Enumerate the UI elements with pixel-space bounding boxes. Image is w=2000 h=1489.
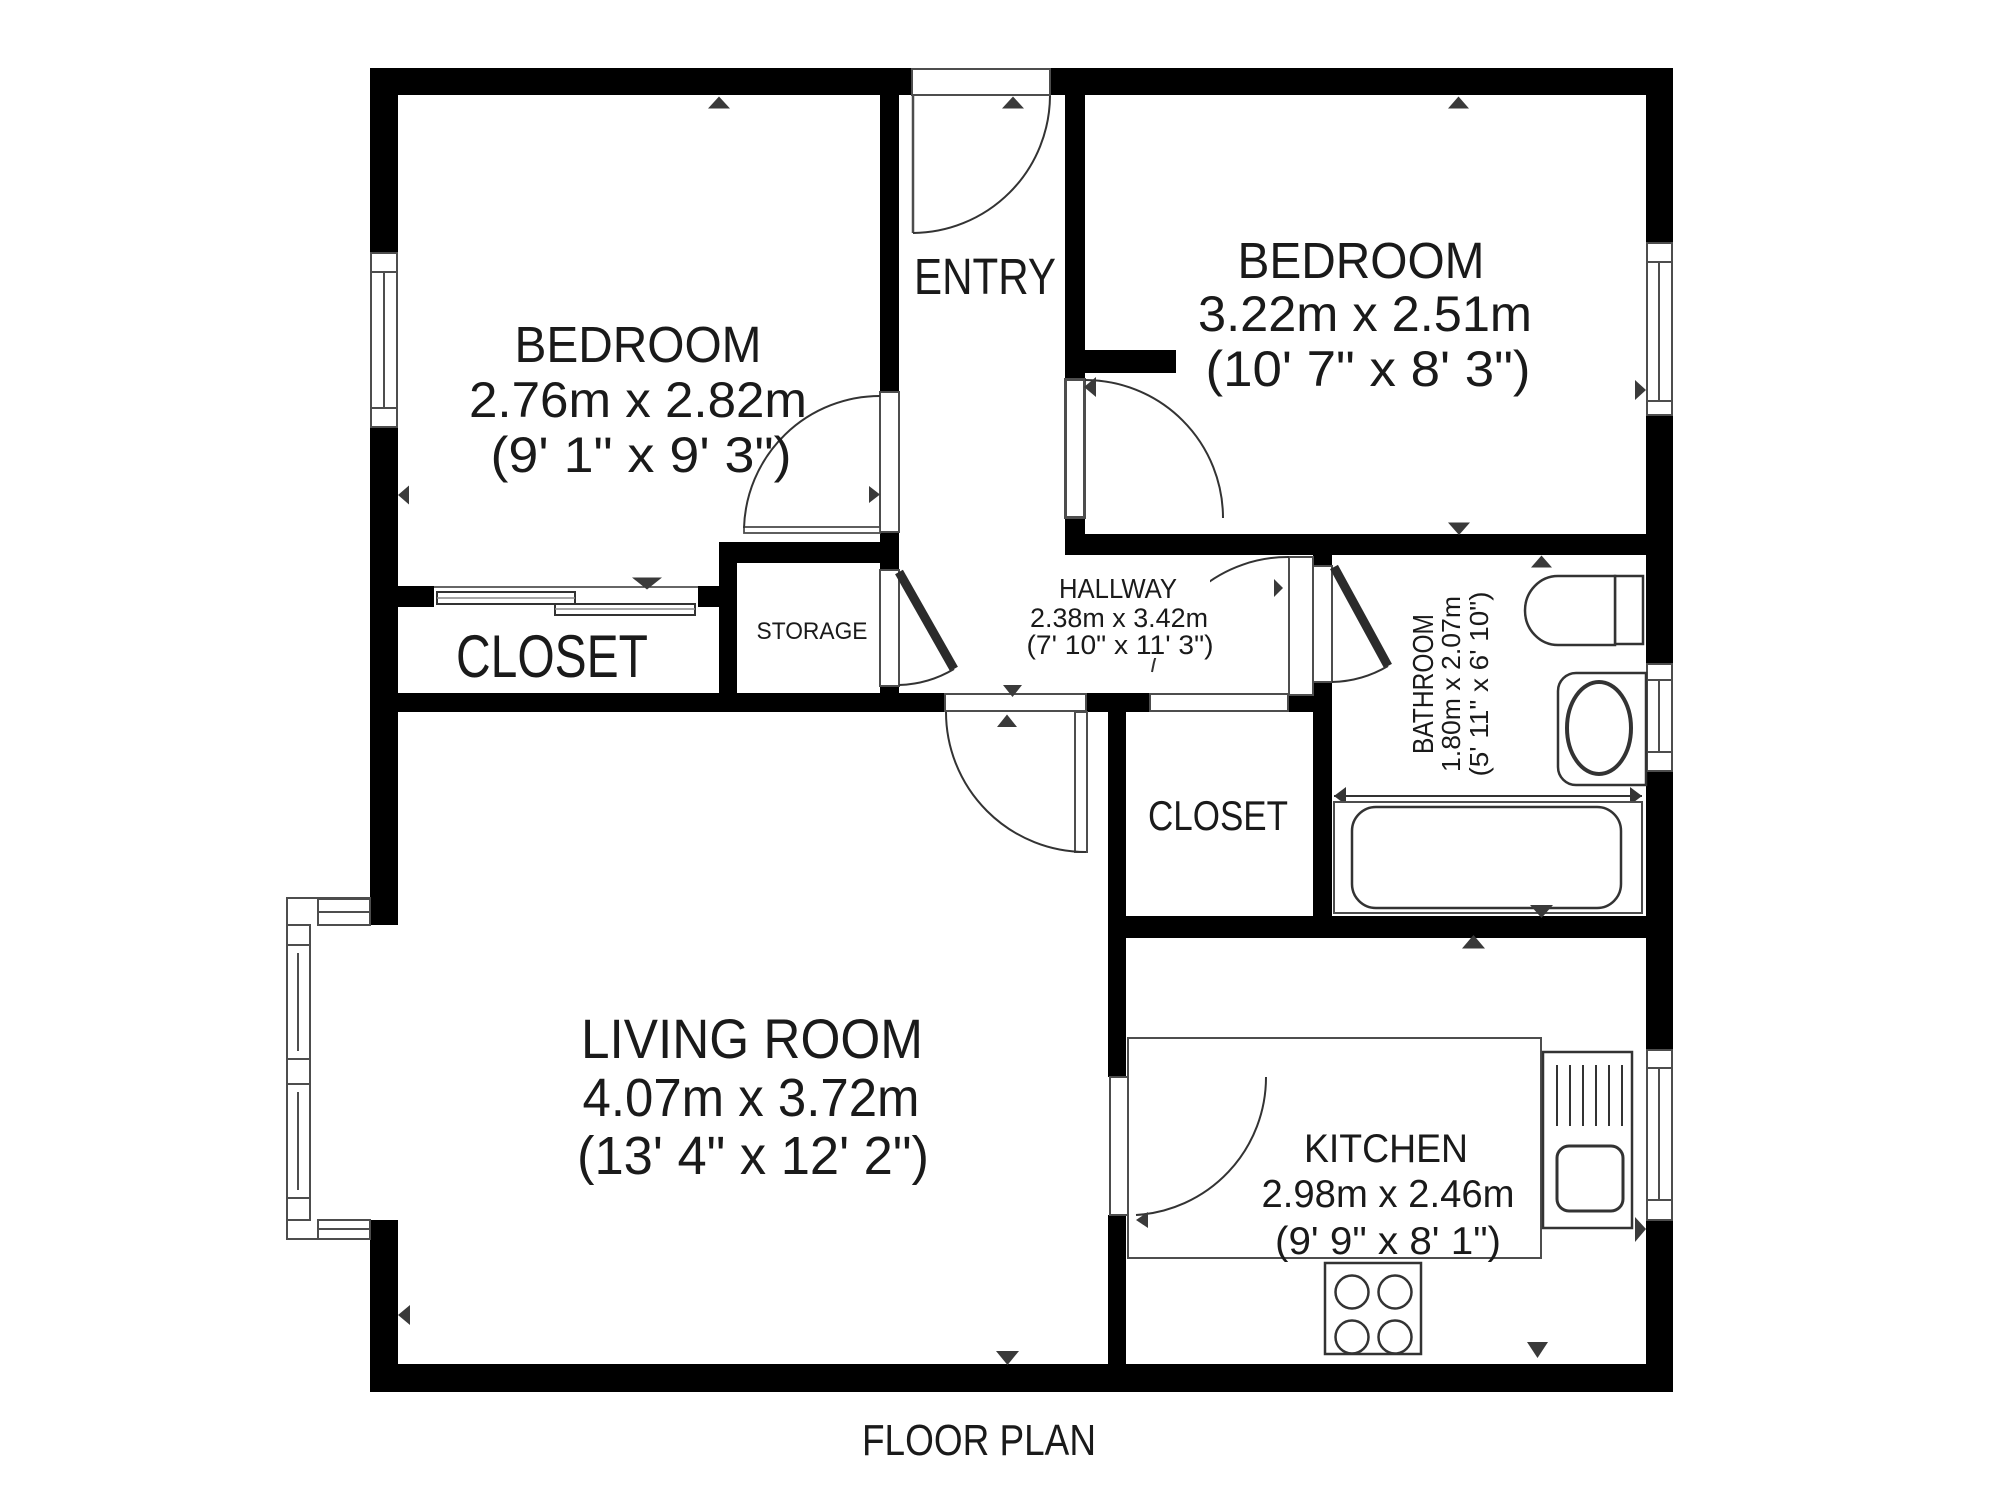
svg-text:3.22m x 2.51m: 3.22m x 2.51m — [1198, 286, 1532, 342]
svg-text:2.38m x 3.42m: 2.38m x 3.42m — [1030, 603, 1208, 633]
svg-text:(10' 7" x 8' 3"): (10' 7" x 8' 3") — [1206, 341, 1531, 397]
svg-text:4.07m x 3.72m: 4.07m x 3.72m — [583, 1068, 920, 1128]
svg-text:FLOOR PLAN: FLOOR PLAN — [862, 1416, 1096, 1465]
svg-text:STORAGE: STORAGE — [757, 618, 868, 645]
svg-text:BEDROOM: BEDROOM — [515, 316, 762, 373]
svg-text:LIVING ROOM: LIVING ROOM — [581, 1007, 923, 1070]
svg-text:(5' 11" x 6' 10"): (5' 11" x 6' 10") — [1464, 592, 1494, 777]
svg-text:ENTRY: ENTRY — [914, 248, 1056, 305]
svg-text:CLOSET: CLOSET — [1148, 792, 1288, 839]
svg-text:1.80m x 2.07m: 1.80m x 2.07m — [1436, 596, 1466, 772]
svg-text:(7' 10" x 11' 3"): (7' 10" x 11' 3") — [1027, 630, 1214, 660]
svg-text:(9' 9" x 8' 1"): (9' 9" x 8' 1") — [1275, 1220, 1501, 1263]
svg-text:HALLWAY: HALLWAY — [1059, 573, 1177, 604]
svg-text:CLOSET: CLOSET — [456, 623, 648, 690]
svg-text:BEDROOM: BEDROOM — [1238, 232, 1485, 289]
svg-text:(9' 1" x 9' 3"): (9' 1" x 9' 3") — [491, 427, 792, 483]
svg-text:2.76m x 2.82m: 2.76m x 2.82m — [469, 372, 807, 428]
svg-text:KITCHEN: KITCHEN — [1304, 1127, 1468, 1171]
svg-text:2.98m x 2.46m: 2.98m x 2.46m — [1262, 1173, 1515, 1216]
svg-text:(13' 4" x 12' 2"): (13' 4" x 12' 2") — [577, 1126, 929, 1186]
